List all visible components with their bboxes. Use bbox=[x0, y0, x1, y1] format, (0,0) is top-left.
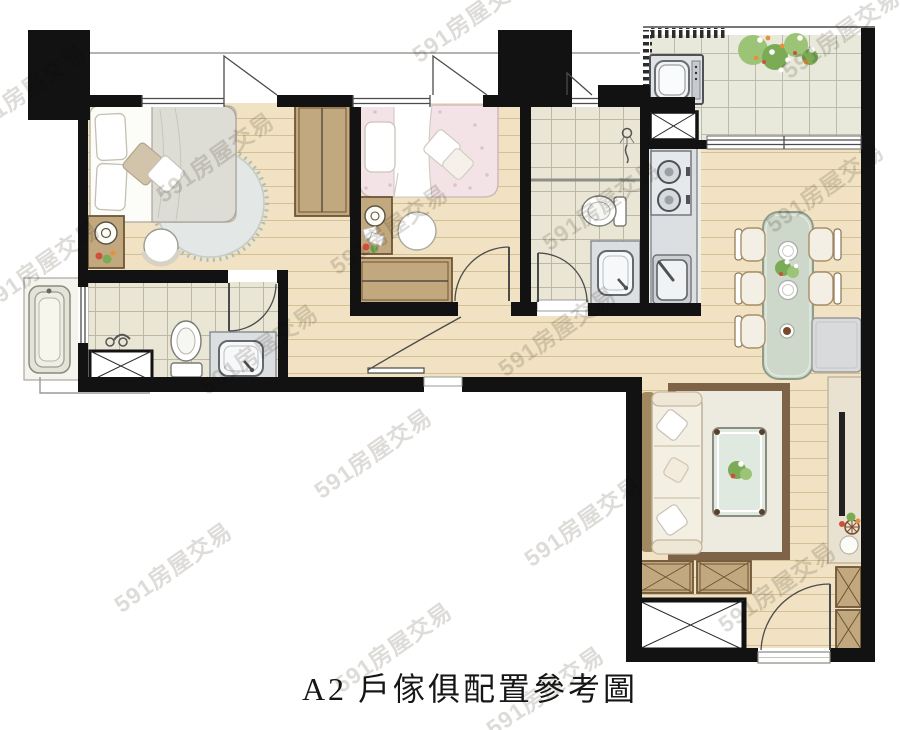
sink-2-icon bbox=[591, 241, 640, 304]
kitchen-sink-icon bbox=[653, 255, 691, 304]
wardrobe-2-icon bbox=[358, 258, 452, 304]
casement-window-icon bbox=[433, 56, 487, 95]
sofa-icon bbox=[640, 392, 702, 554]
sink-1-icon bbox=[210, 332, 276, 383]
tub-window-icon bbox=[78, 287, 88, 343]
floorplan-page: 591房屋交易 591房屋交易 591房屋交易 591房屋交易 591房屋交易 … bbox=[0, 0, 900, 730]
dining-chair-icon bbox=[809, 228, 841, 261]
dining-table-icon bbox=[763, 212, 813, 379]
drain-grate-icon bbox=[650, 28, 725, 38]
single-bed-icon bbox=[360, 105, 498, 197]
sideboard-icon bbox=[812, 318, 861, 372]
coffee-table-icon bbox=[713, 428, 766, 516]
sliding-door-icon bbox=[707, 136, 861, 149]
casement-window-icon bbox=[224, 56, 277, 95]
nightstand-icon bbox=[88, 216, 124, 268]
double-bed-icon bbox=[90, 106, 236, 222]
tv-icon bbox=[839, 412, 845, 516]
bathtub-icon bbox=[29, 286, 70, 373]
plan-caption: A2 戶傢俱配置參考圖 bbox=[0, 664, 900, 710]
stool-icon bbox=[398, 212, 436, 250]
window-icon bbox=[142, 95, 224, 107]
floorplan-svg bbox=[0, 0, 900, 730]
dining-chair-icon bbox=[735, 272, 765, 305]
toilet-1-icon bbox=[171, 321, 202, 377]
armchair-icon bbox=[143, 229, 179, 264]
stove-icon bbox=[651, 151, 691, 215]
washing-machine-icon bbox=[650, 55, 703, 104]
window-icon bbox=[572, 95, 598, 107]
dining-chair-icon bbox=[735, 228, 765, 261]
shoe-cabinet-icon bbox=[836, 610, 861, 649]
vanity-table-icon bbox=[358, 197, 392, 254]
window-icon bbox=[353, 95, 430, 107]
toilet-2-icon bbox=[582, 196, 626, 226]
storage-cabinet-icon bbox=[638, 561, 693, 593]
tv-wall bbox=[828, 377, 862, 563]
storage-cabinet-icon bbox=[697, 561, 751, 593]
pipe-shaft-icon bbox=[650, 112, 697, 140]
column bbox=[498, 30, 572, 107]
structure-shaft-icon bbox=[637, 600, 744, 650]
dining-chair-icon bbox=[809, 272, 841, 305]
dining-chair-icon bbox=[735, 315, 765, 348]
laundry-shaft-icon bbox=[90, 351, 152, 381]
shoe-cabinet-icon bbox=[836, 567, 861, 607]
wardrobe-icon bbox=[295, 104, 350, 216]
